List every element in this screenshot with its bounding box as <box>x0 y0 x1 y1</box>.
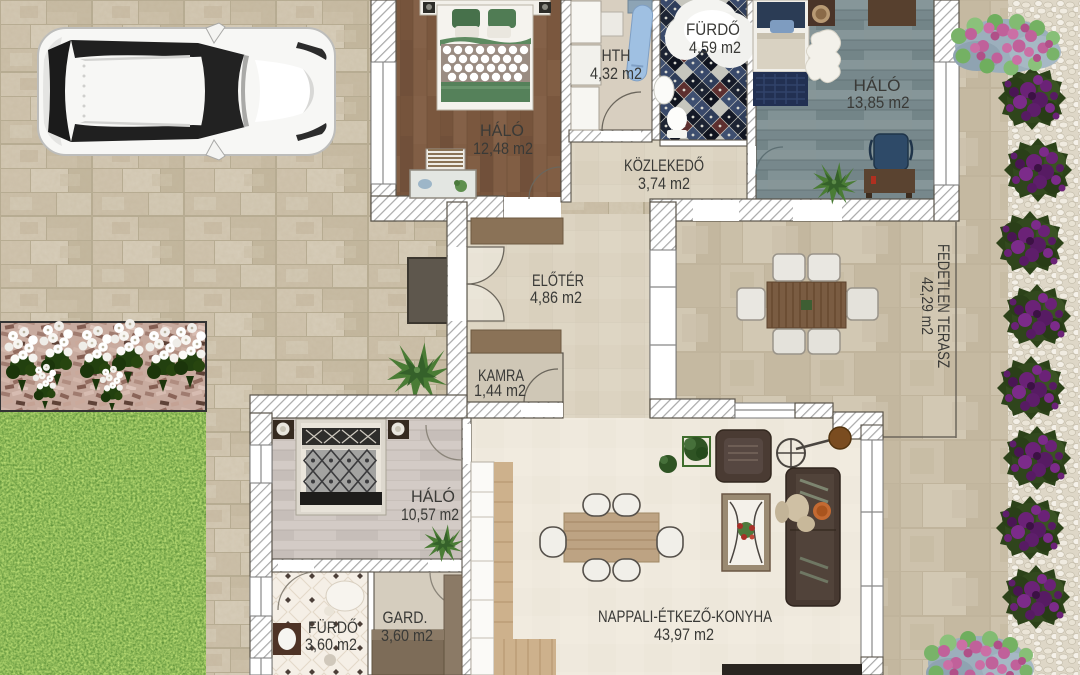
svg-text:1,44 m2: 1,44 m2 <box>474 381 526 400</box>
svg-text:43,97 m2: 43,97 m2 <box>654 625 714 644</box>
svg-text:KÖZLEKEDŐ: KÖZLEKEDŐ <box>624 156 704 175</box>
svg-text:GARD.: GARD. <box>383 608 428 627</box>
svg-text:3,74 m2: 3,74 m2 <box>638 174 690 193</box>
svg-text:HÁLÓ: HÁLÓ <box>411 487 455 506</box>
svg-text:HÁLÓ: HÁLÓ <box>480 121 524 140</box>
svg-text:NAPPALI-ÉTKEZŐ-KONYHA: NAPPALI-ÉTKEZŐ-KONYHA <box>598 607 773 626</box>
svg-text:3,60 m2: 3,60 m2 <box>305 635 357 654</box>
svg-text:HTH: HTH <box>602 46 631 65</box>
svg-text:FEDETLEN TERASZ: FEDETLEN TERASZ <box>934 244 953 368</box>
svg-text:10,57 m2: 10,57 m2 <box>401 505 459 524</box>
svg-text:13,85 m2: 13,85 m2 <box>847 93 910 112</box>
svg-text:FÜRDŐ: FÜRDŐ <box>686 20 740 39</box>
svg-text:42,29 m2: 42,29 m2 <box>918 277 935 335</box>
svg-text:4,86 m2: 4,86 m2 <box>530 288 582 307</box>
svg-text:12,48 m2: 12,48 m2 <box>473 139 533 158</box>
svg-text:4,59 m2: 4,59 m2 <box>689 38 741 57</box>
svg-text:4,32 m2: 4,32 m2 <box>590 64 642 83</box>
svg-text:3,60 m2: 3,60 m2 <box>381 626 433 645</box>
